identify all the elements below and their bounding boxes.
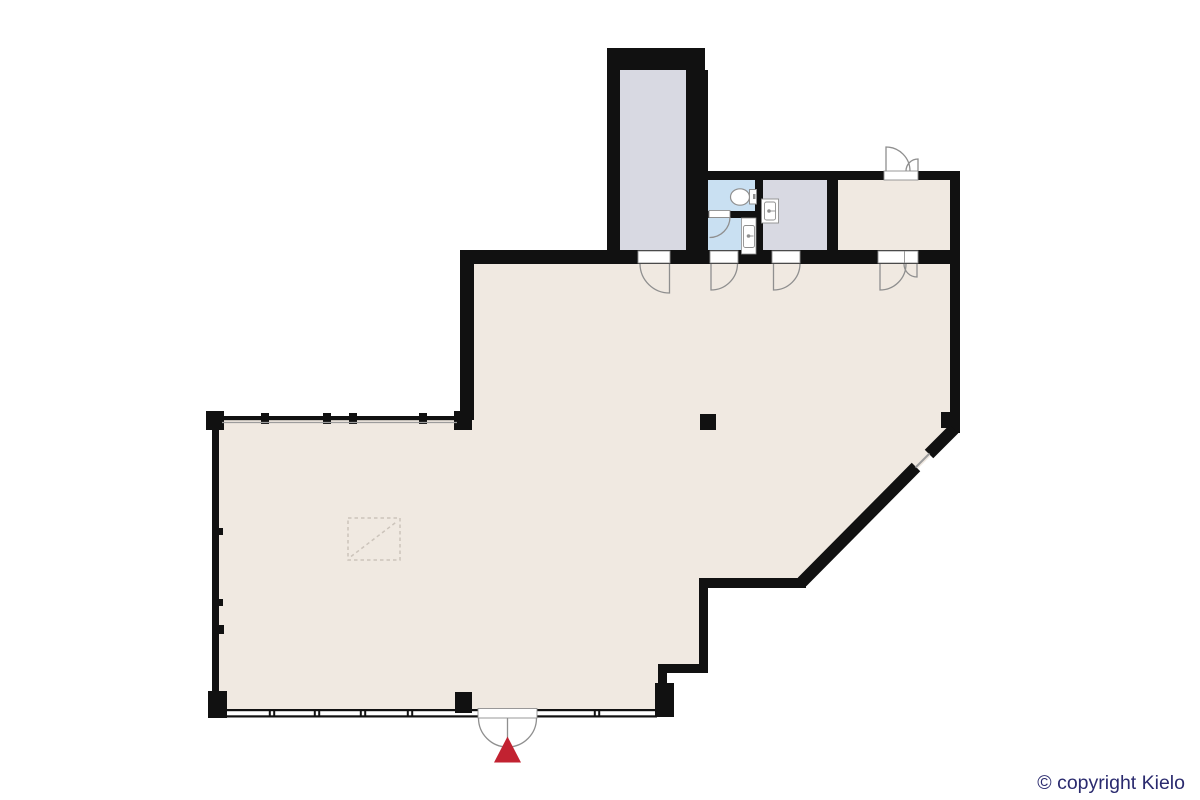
window-mullion	[314, 709, 316, 718]
window-band-line	[227, 715, 478, 717]
toilet-bowl	[731, 189, 750, 205]
wall-segment	[950, 171, 960, 433]
wall-segment	[699, 578, 806, 588]
window-band-line	[537, 715, 657, 717]
wall-segment	[217, 625, 224, 634]
wall-segment	[699, 578, 708, 673]
wall-segment	[212, 411, 219, 718]
toilet-tank-detail	[753, 194, 756, 199]
door-sill	[638, 251, 670, 263]
wall-segment	[454, 411, 472, 430]
wall-segment	[827, 171, 838, 255]
toilet-icon	[731, 189, 757, 205]
wall-pilaster	[941, 412, 951, 428]
wall-segment	[217, 528, 223, 535]
window-mullion	[318, 709, 320, 718]
wall-segment	[217, 599, 223, 606]
door-sill	[772, 251, 800, 263]
floorplan-canvas: © copyright Kielo	[0, 0, 1200, 800]
door-sill	[478, 709, 537, 719]
sink-icon	[762, 199, 779, 223]
wall-segment	[460, 250, 474, 420]
window-mullion	[411, 709, 413, 718]
window-mullion	[360, 709, 362, 718]
window-mullion	[594, 709, 596, 718]
window-band-line	[227, 709, 478, 711]
column	[700, 414, 716, 430]
window-band-line	[537, 709, 657, 711]
door-sill	[710, 251, 738, 263]
window-mullion	[364, 709, 366, 718]
window-mullion	[273, 709, 275, 718]
wall-segment	[607, 48, 705, 70]
copyright-text: © copyright Kielo	[1037, 772, 1185, 794]
wall-segment	[208, 691, 227, 718]
counter-sink-icon	[742, 218, 757, 254]
window-mullion	[598, 709, 600, 718]
door-leaf-closed	[709, 211, 730, 218]
wall-segment	[607, 48, 620, 264]
window-mullion	[407, 709, 409, 718]
wall-segment	[686, 70, 708, 264]
window-mullion	[269, 709, 271, 718]
room-stairwell-floor	[618, 68, 688, 254]
door-sill	[884, 171, 918, 180]
door-sill	[878, 251, 918, 263]
room-side-room-floor	[836, 178, 952, 255]
